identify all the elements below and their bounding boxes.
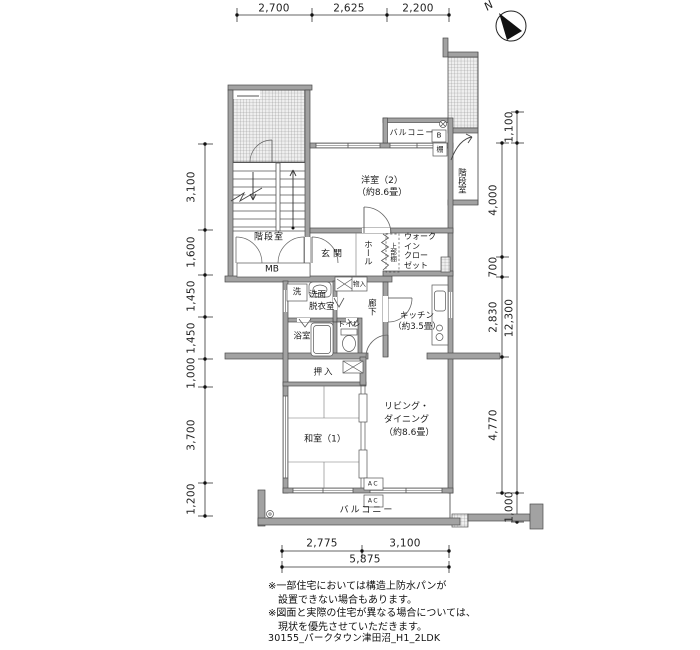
- room-label-bath: 浴室: [293, 332, 310, 343]
- room-label-toilet: トイレ: [338, 319, 361, 328]
- dim-right-2: 700: [487, 257, 500, 278]
- shelf-box-label: 棚: [437, 145, 444, 154]
- dim-right-outer-3: 1,000: [503, 491, 516, 523]
- toilet-bowl: [343, 336, 356, 352]
- room-label-kitchen: キッチン （約3.5畳）: [393, 311, 441, 333]
- dim-right-1: 4,000: [487, 184, 500, 216]
- room-label-hall: ホール: [362, 240, 373, 266]
- sliding-partition: [359, 385, 367, 488]
- balcony-drain: [267, 511, 274, 518]
- shaft-box: [441, 257, 450, 272]
- dim-bottom-2: 3,100: [389, 537, 421, 550]
- room-label-corridor: 廊下: [366, 299, 377, 316]
- b-box-label: B: [437, 132, 442, 141]
- room-label-stair-right: 階段室: [456, 168, 467, 194]
- disclaimer-notes: ※一部住宅においては構造上防水パンが 設置できない場合もあります。 ※図面と実際…: [268, 580, 476, 634]
- dim-left-4: 1,450: [185, 322, 198, 354]
- room-label-japanese1: 和室（1）: [304, 434, 346, 445]
- ac-label-indoor: AC: [368, 480, 379, 488]
- room-label-washer: 洗: [293, 288, 302, 299]
- mb-label: MB: [265, 264, 279, 275]
- staircase-left: [231, 163, 305, 263]
- room-label-balcony-bottom: バルコニー: [340, 505, 395, 516]
- dim-left-3: 1,450: [185, 280, 198, 312]
- room-label-living: リビング・ ダイニング （約8.6畳）: [384, 401, 434, 440]
- drawing-code: 30155_パークタウン津田沼_H1_2LDK: [268, 633, 440, 645]
- dim-bottom-1: 2,775: [306, 537, 338, 550]
- compass-icon: [496, 11, 526, 41]
- dim-top-3: 2,200: [402, 2, 434, 15]
- dim-left-7: 1,200: [185, 483, 198, 515]
- room-label-oshiire: 押入: [313, 368, 334, 379]
- room-label-genkan: 玄関: [321, 249, 345, 260]
- dim-left-5: 1,000: [185, 357, 198, 389]
- dim-bottom-total: 5,875: [349, 553, 381, 566]
- dim-top-2: 2,625: [333, 2, 365, 15]
- dim-right-outer-2: 12,300: [503, 299, 516, 338]
- dim-right-3: 2,830: [487, 301, 500, 333]
- ac-label-outdoor: AC: [368, 497, 379, 505]
- room-label-western2: 洋室（2） （約8.6畳）: [357, 175, 407, 199]
- toilet-tank: [341, 329, 357, 335]
- dim-left-1: 3,100: [185, 171, 198, 203]
- bathtub: [311, 323, 333, 356]
- dim-left-2: 1,600: [185, 236, 198, 268]
- dim-right-outer-1: 1,100: [503, 111, 516, 143]
- room-label-washroom: 洗面 脱衣室: [309, 290, 335, 313]
- room-label-monoire: 物入: [353, 280, 366, 288]
- room-label-balcony-top: バルコニー: [390, 128, 435, 138]
- dim-left-6: 3,700: [185, 419, 198, 451]
- floorplan-page: { "compass": { "north": "N" }, "dims": {…: [0, 0, 700, 650]
- room-label-wic: ウォーク イン クロー ゼット: [404, 232, 436, 270]
- dim-right-4: 4,770: [487, 409, 500, 441]
- dim-top-1: 2,700: [258, 2, 290, 15]
- room-label-stair-left: 階段室: [254, 232, 284, 243]
- staircase-right: [451, 134, 472, 160]
- room-label-upper-shelf: 上部棚: [388, 242, 396, 262]
